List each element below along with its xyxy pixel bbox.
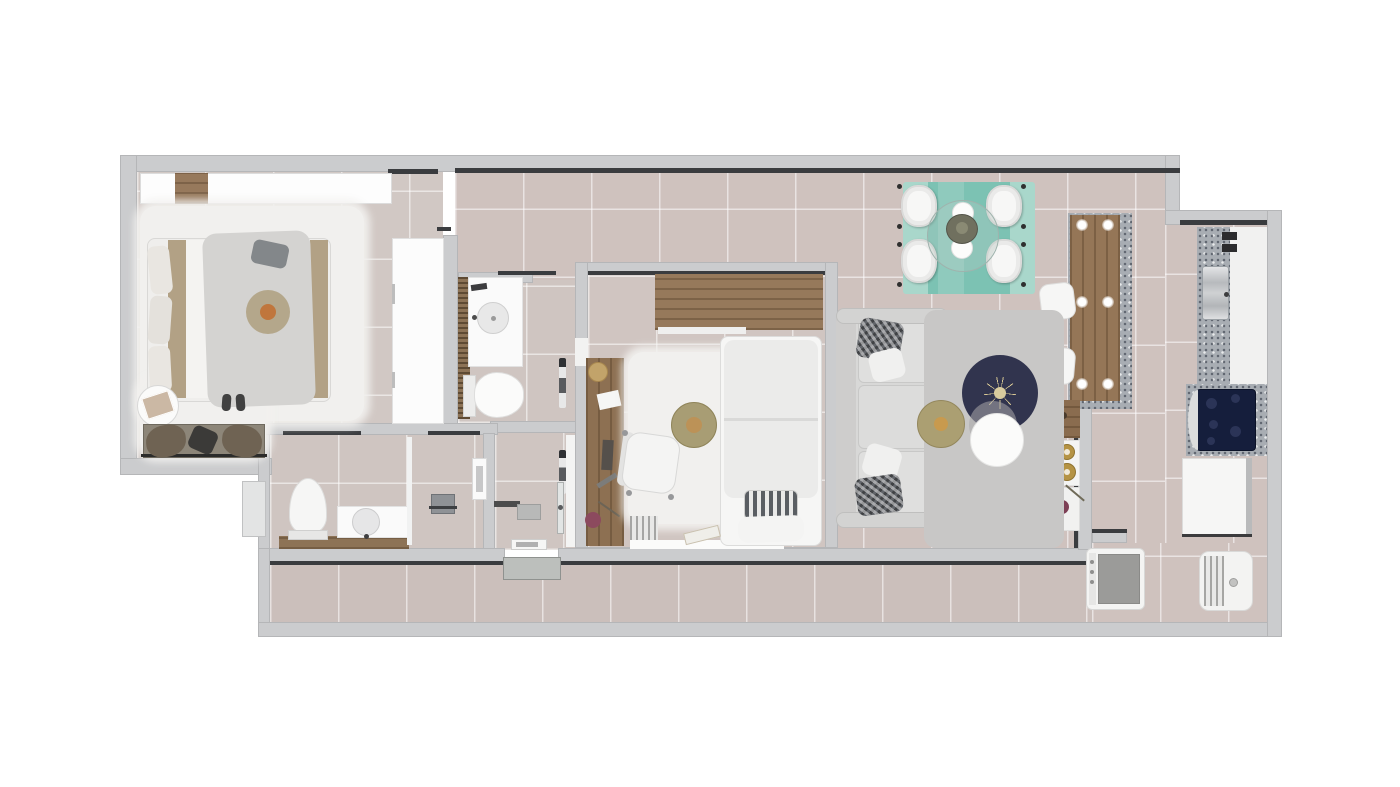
stove-burner-2 xyxy=(1231,394,1240,403)
bar-light-6 xyxy=(1102,378,1114,390)
edge-corridor-left xyxy=(270,561,503,565)
kitchen-sink-faucet xyxy=(1224,292,1229,297)
wall-master-bath-divider xyxy=(443,235,458,435)
bathroom-2-toilet-tank xyxy=(288,530,328,540)
bedroom-2-radiator xyxy=(630,516,658,540)
bedroom-2-wardrobe-shelf xyxy=(658,327,746,334)
wall-left xyxy=(120,155,137,475)
living-rug-navy-center xyxy=(994,387,1006,399)
entry-door-mat xyxy=(503,557,561,580)
bedroom-2-wardrobe xyxy=(655,274,823,330)
master-wardrobe-wood-section xyxy=(175,173,208,204)
wall-bottom xyxy=(258,622,1282,637)
bathroom-1-sink-drain xyxy=(491,316,496,321)
edge-bathroom-2-top-a xyxy=(283,431,361,435)
entry-hall-door-handle xyxy=(558,505,563,510)
bedroom-2-chair-wheel-3 xyxy=(622,430,628,436)
chair-foot-7 xyxy=(1021,242,1026,247)
chair-foot-6 xyxy=(1021,224,1026,229)
bedroom-2-pillow-white xyxy=(738,515,805,543)
chair-foot-4 xyxy=(897,282,902,287)
bar-light-2 xyxy=(1102,219,1114,231)
entry-hall-step xyxy=(517,504,541,520)
bar-light-5 xyxy=(1076,378,1088,390)
bar-light-4 xyxy=(1102,296,1114,308)
apartment-floor-plan xyxy=(0,0,1400,787)
stove-burner-1 xyxy=(1206,398,1217,409)
washing-machine-knob-1 xyxy=(1090,560,1094,564)
edge-bathroom-2-top-b xyxy=(428,431,480,435)
bedroom-2-desk-keyboard xyxy=(601,440,614,471)
master-closet-handle-1 xyxy=(392,284,395,304)
bedroom-2-flower-vase xyxy=(585,512,601,528)
master-pillow-2 xyxy=(147,295,172,344)
edge-top-main xyxy=(455,168,1180,173)
bathroom-2-faucet xyxy=(364,534,369,539)
wall-bathroom-1-hall-divider xyxy=(490,421,578,433)
entry-hall-switch-glyphs xyxy=(516,542,538,547)
edge-bathroom-1-top xyxy=(498,271,556,275)
bedroom-2-duvet-fold xyxy=(724,418,818,421)
fridge-edge xyxy=(1246,458,1252,536)
dining-centerpiece-plant xyxy=(956,222,968,234)
chair-foot-2 xyxy=(897,224,902,229)
bathroom-1-door-track-1 xyxy=(559,358,566,408)
entry-hall-white-strip xyxy=(566,435,575,547)
stove-burner-4 xyxy=(1230,426,1241,437)
stove-burner-3 xyxy=(1209,420,1218,429)
bedroom-2-pouf-center xyxy=(686,417,702,433)
chair-foot-8 xyxy=(1021,282,1026,287)
kitchen-counter-item-1 xyxy=(1222,232,1237,240)
master-slipper-1 xyxy=(221,394,231,412)
master-closet xyxy=(392,238,444,424)
fridge xyxy=(1182,458,1252,536)
utility-box-exterior xyxy=(242,481,266,537)
kitchen-counter-item-2 xyxy=(1222,244,1237,252)
edge-corridor-right xyxy=(560,561,1090,565)
stove-burner-5 xyxy=(1207,437,1215,445)
master-door-frame xyxy=(437,227,451,231)
master-closet-handle-2 xyxy=(392,372,395,388)
washing-machine-knob-3 xyxy=(1090,580,1094,584)
wall-right xyxy=(1267,210,1282,637)
edge-kitchen-top xyxy=(1180,220,1267,225)
bathroom-2-shower-mixer xyxy=(431,494,455,514)
bar-counter-wood xyxy=(1070,215,1120,401)
sideboard-plate-2-center xyxy=(1064,469,1070,475)
fridge-bottom-line xyxy=(1182,534,1252,537)
bathroom-2-sink xyxy=(352,508,380,536)
bathroom-2-shower-column-glyphs xyxy=(476,466,483,492)
coffee-table-olive-center xyxy=(934,417,948,431)
sofa-pillow-checker-2 xyxy=(854,473,905,517)
washing-machine-knob-2 xyxy=(1090,570,1094,574)
bar-light-1 xyxy=(1076,219,1088,231)
bathroom-1-toilet-bowl xyxy=(474,372,524,418)
bedroom-2-chair xyxy=(620,431,682,496)
bedroom-2-desk-tray xyxy=(588,362,608,382)
master-bed-tray-center xyxy=(260,304,276,320)
sofa-back xyxy=(836,312,856,526)
bedroom-2-chair-wheel-1 xyxy=(626,490,632,496)
edge-top-master xyxy=(388,169,438,174)
wall-master-bottom xyxy=(120,458,272,475)
laundry-tub-board xyxy=(1204,556,1224,606)
stove xyxy=(1196,389,1256,451)
bathroom-2-glass-divider xyxy=(407,437,412,545)
chair-foot-3 xyxy=(897,242,902,247)
bar-light-3 xyxy=(1076,296,1088,308)
chair-foot-1 xyxy=(897,184,902,189)
laundry-tub-drain xyxy=(1229,578,1238,587)
bathroom-2-shower-bar xyxy=(429,506,457,509)
coffee-table-white xyxy=(970,413,1024,467)
sideboard-plate-1-center xyxy=(1064,449,1070,455)
chair-foot-5 xyxy=(1021,184,1026,189)
bedroom-2-chair-wheel-2 xyxy=(668,494,674,500)
corridor-floor xyxy=(270,563,1092,625)
edge-laundry-stub xyxy=(1092,529,1127,533)
master-slipper-2 xyxy=(235,394,245,412)
washing-machine-lid xyxy=(1098,554,1140,604)
bathroom-1-faucet xyxy=(472,315,477,320)
wall-laundry-divider xyxy=(1078,398,1092,550)
